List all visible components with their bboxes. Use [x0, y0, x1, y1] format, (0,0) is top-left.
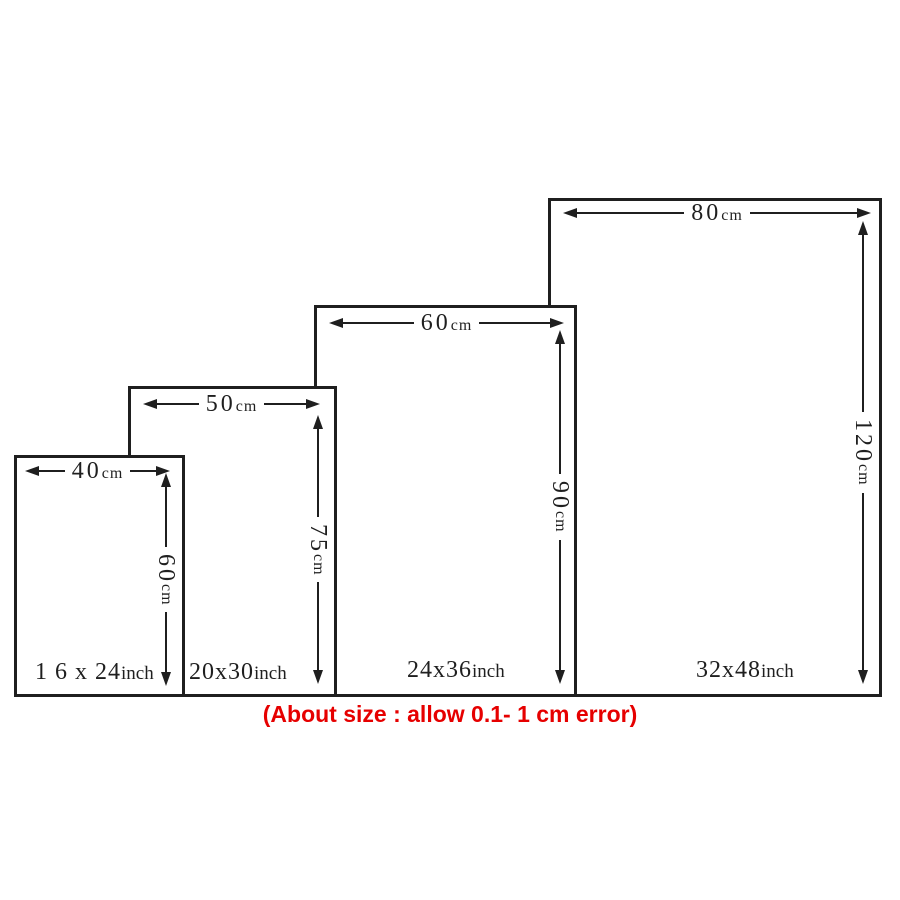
arrow-down-icon: [858, 670, 868, 684]
dimension-line: [39, 470, 65, 472]
arrow-up-icon: [161, 473, 171, 487]
height-value: 90cm: [548, 481, 572, 533]
width-value: 40cm: [72, 459, 124, 483]
size-box-24x36inch: 60cm 90cm 24x36inch: [314, 305, 577, 697]
size-label-20x30inch: 20x30inch: [189, 660, 287, 684]
width-dimension-60cm: 60cm: [329, 313, 564, 333]
size-chart-diagram: 80cm 120cm 32x48inch 60cm 90cm: [0, 0, 900, 900]
dimension-line: [165, 612, 167, 672]
arrow-left-icon: [25, 466, 39, 476]
arrow-right-icon: [857, 208, 871, 218]
arrow-left-icon: [143, 399, 157, 409]
width-dimension-50cm: 50cm: [143, 394, 320, 414]
dimension-line: [165, 487, 167, 547]
dimension-line: [317, 429, 319, 517]
width-value: 80cm: [691, 201, 743, 225]
dimension-line: [479, 322, 550, 324]
dimension-line: [343, 322, 414, 324]
height-dimension-120cm: 120cm: [853, 221, 873, 684]
height-dimension-60cm: 60cm: [156, 473, 176, 686]
dimension-line: [157, 403, 199, 405]
arrow-right-icon: [306, 399, 320, 409]
dimension-line: [317, 582, 319, 670]
dimension-line: [862, 235, 864, 412]
height-dimension-75cm: 75cm: [308, 415, 328, 684]
dimension-line: [577, 212, 684, 214]
width-value: 50cm: [206, 392, 258, 416]
arrow-up-icon: [555, 330, 565, 344]
dimension-line: [130, 470, 156, 472]
arrow-right-icon: [550, 318, 564, 328]
height-value: 60cm: [154, 554, 178, 606]
arrow-up-icon: [858, 221, 868, 235]
dimension-line: [559, 344, 561, 474]
size-label-24x36inch: 24x36inch: [407, 658, 505, 682]
arrow-up-icon: [313, 415, 323, 429]
dimension-line: [862, 493, 864, 670]
arrow-left-icon: [329, 318, 343, 328]
width-dimension-80cm: 80cm: [563, 203, 871, 223]
dimension-line: [559, 540, 561, 670]
width-value: 60cm: [421, 311, 473, 335]
width-dimension-40cm: 40cm: [25, 461, 170, 481]
arrow-down-icon: [313, 670, 323, 684]
height-value: 120cm: [851, 419, 875, 486]
size-box-32x48inch: 80cm 120cm 32x48inch: [548, 198, 882, 697]
dimension-line: [750, 212, 857, 214]
size-label-16x24inch: 1 6 x 24inch: [35, 660, 154, 684]
arrow-down-icon: [161, 672, 171, 686]
size-box-16x24inch: 40cm 60cm 1 6 x 24inch: [14, 455, 185, 697]
dimension-line: [264, 403, 306, 405]
arrow-down-icon: [555, 670, 565, 684]
size-label-32x48inch: 32x48inch: [696, 658, 794, 682]
arrow-left-icon: [563, 208, 577, 218]
height-value: 75cm: [306, 524, 330, 576]
height-dimension-90cm: 90cm: [550, 330, 570, 684]
size-tolerance-note: (About size : allow 0.1- 1 cm error): [0, 701, 900, 728]
